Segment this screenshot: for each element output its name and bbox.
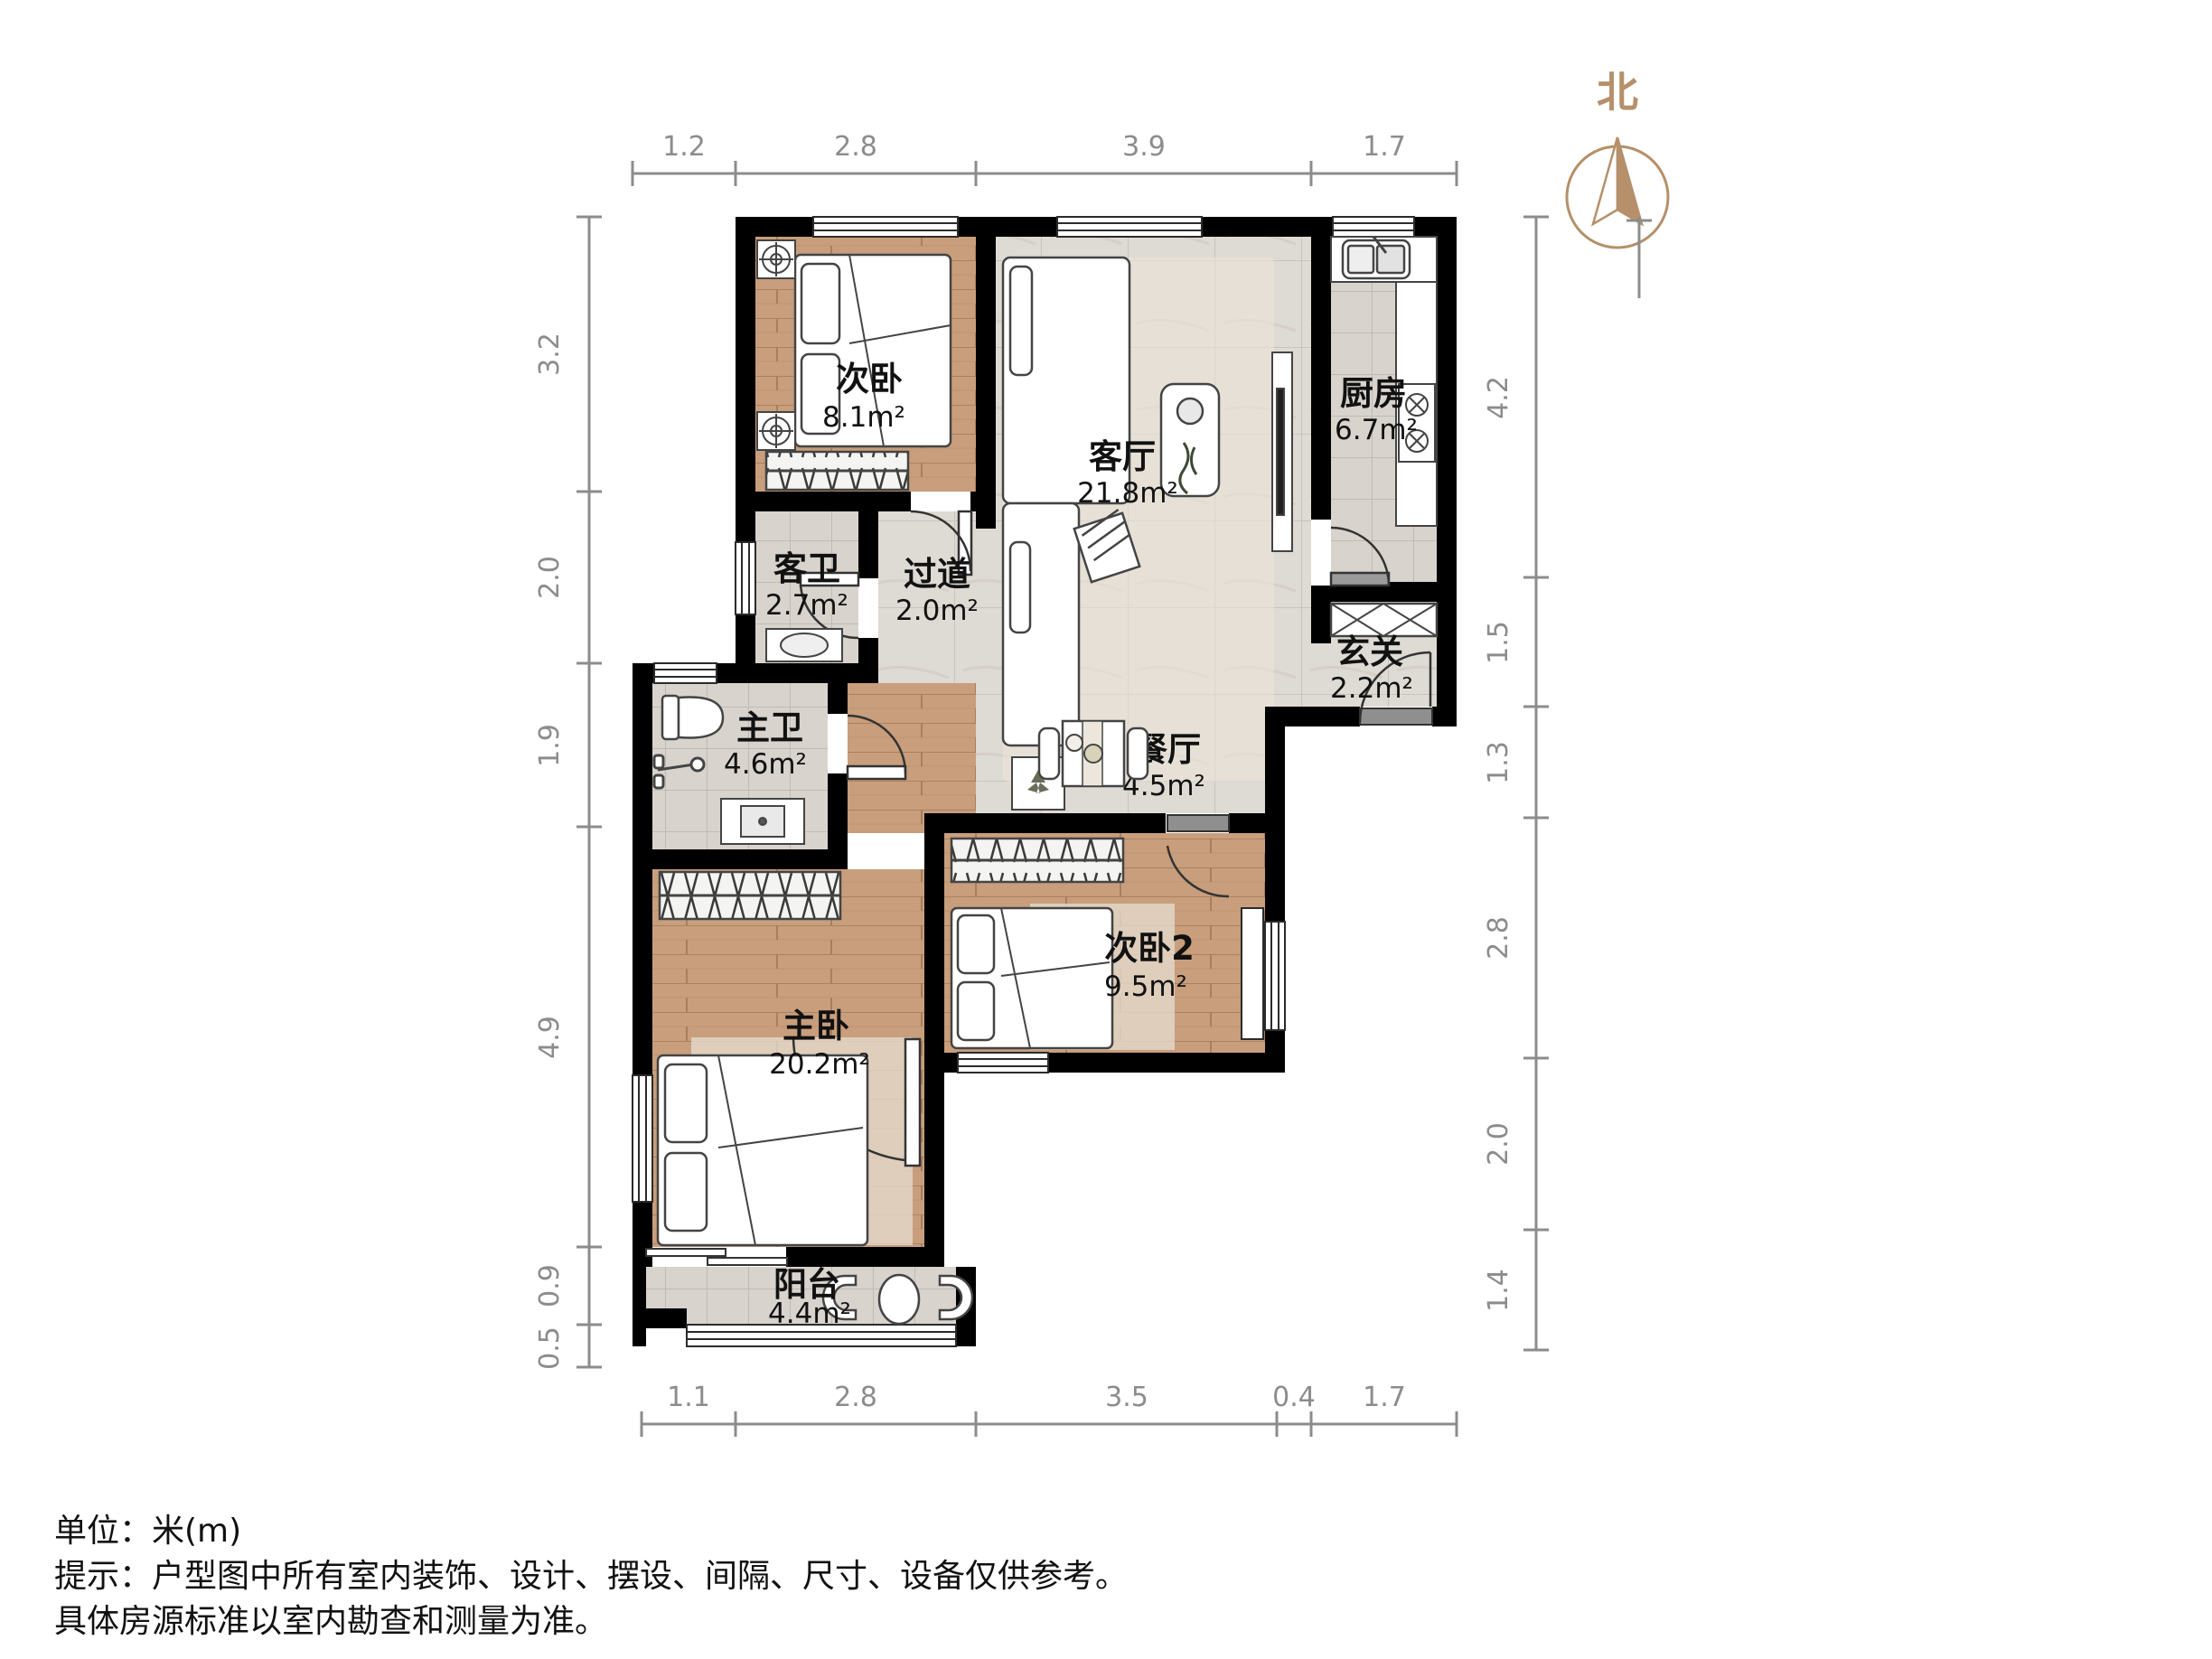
flue-icon	[757, 412, 795, 450]
dim-left	[576, 217, 602, 1367]
dim-left-2: 1.9	[534, 724, 566, 767]
room-area-balcony: 4.4m²	[768, 1298, 851, 1330]
dim-right-5: 1.4	[1483, 1269, 1514, 1312]
sofa-cushion	[1010, 542, 1030, 633]
balcony-table	[879, 1275, 919, 1324]
bedroom3-bed	[951, 908, 1112, 1048]
dim-top-3: 1.7	[1363, 131, 1406, 163]
wall-guestbath-bottom	[755, 663, 878, 683]
wall-masterbath-bottom	[633, 849, 848, 869]
north-arrow-icon: 北	[1567, 68, 1668, 298]
master-wardrobe	[660, 872, 840, 919]
dim-left-5: 0.5	[534, 1326, 566, 1370]
dim-left-1: 2.0	[534, 556, 566, 599]
wall-entry-bottom-a	[1277, 707, 1360, 726]
wall-kitchen-left-a	[1311, 237, 1331, 520]
wall-kitchen-left-b	[1311, 586, 1331, 643]
unit-note: 单位：米(m)	[54, 1513, 241, 1550]
wall-bedroom3-top-a	[924, 813, 1166, 833]
wall-entry-bottom-b	[1432, 707, 1457, 726]
window-master-left	[633, 1075, 652, 1202]
master-bed	[658, 1055, 867, 1245]
footer-notes: 单位：米(m) 提示：户型图中所有室内装饰、设计、摆设、间隔、尺寸、设备仅供参考…	[54, 1513, 1128, 1640]
room-area-entry: 2.2m²	[1330, 672, 1413, 705]
room-area-bedroom3: 9.5m²	[1104, 970, 1187, 1003]
room-area-guestbath: 2.7m²	[765, 589, 848, 622]
bedroom3-wardrobe	[951, 839, 1123, 882]
dim-top-1: 2.8	[834, 131, 877, 163]
dim-top-0: 1.2	[662, 131, 706, 163]
dining-chair	[1128, 728, 1148, 779]
bedroom2-wardrobe	[766, 452, 908, 490]
room-label-entry: 玄关	[1336, 633, 1403, 671]
dim-right	[1523, 217, 1549, 1350]
flue-icon	[757, 240, 795, 278]
dim-right-3: 2.8	[1483, 916, 1514, 960]
room-label-bedroom2: 次卧	[836, 360, 903, 398]
window-bedroom2-top	[813, 217, 958, 237]
dim-right-1: 1.5	[1483, 621, 1514, 664]
guestbath-vanity	[766, 629, 842, 661]
wall-bedroom3-top-b	[1229, 813, 1285, 833]
wall-master-right	[924, 833, 944, 1267]
room-area-master: 20.2m²	[769, 1048, 870, 1081]
door-balcony-slider	[646, 1249, 787, 1265]
wall-balcony-step	[633, 1308, 687, 1328]
room-area-bedroom2: 8.1m²	[822, 401, 905, 434]
wall-bedroom2-right	[976, 237, 996, 529]
pillow	[665, 1064, 707, 1142]
wall-guestbath-right-b	[858, 638, 878, 663]
tv-cabinet	[1272, 352, 1292, 551]
wall-bedroom2-bottom	[736, 492, 911, 511]
dining-chair	[1039, 728, 1059, 779]
dim-right-4: 2.0	[1483, 1122, 1514, 1166]
dim-top	[633, 161, 1457, 186]
room-area-masterbath: 4.6m²	[724, 748, 807, 781]
pillow	[958, 982, 994, 1040]
dim-bottom-2: 3.5	[1105, 1382, 1148, 1413]
masterbath-vanity	[721, 799, 804, 844]
room-label-hallway: 过道	[904, 555, 970, 594]
wall-bedroom2-bottom-2	[970, 492, 996, 511]
wall-master-bottom-b	[786, 1247, 944, 1267]
masterbath-toilet-icon	[662, 696, 723, 739]
wall-masterbath-right-a	[828, 683, 848, 714]
pillow	[665, 1153, 707, 1231]
dim-left-4: 0.9	[534, 1264, 566, 1308]
room-label-living: 客厅	[1089, 437, 1156, 476]
window-bedroom3-right	[1242, 908, 1285, 1039]
dim-right-2: 1.3	[1483, 741, 1514, 784]
window-kitchen-top	[1333, 217, 1414, 237]
pillow	[801, 264, 839, 343]
room-area-kitchen: 6.7m²	[1335, 414, 1418, 446]
entry-shoe-cabinet	[1331, 604, 1437, 636]
dim-top-2: 3.9	[1122, 131, 1166, 163]
wall-balcony-left	[633, 1267, 646, 1346]
room-label-master: 主卧	[783, 1007, 849, 1045]
wall-master-bottom-a	[633, 1247, 646, 1267]
room-area-hallway: 2.0m²	[895, 595, 979, 627]
room-label-masterbath: 主卫	[736, 708, 803, 747]
tip-note-2: 具体房源标准以室内勘查和测量为准。	[54, 1603, 607, 1640]
dim-bottom-4: 1.7	[1363, 1382, 1406, 1413]
kitchen-sink-icon	[1343, 237, 1410, 278]
room-area-living: 21.8m²	[1077, 477, 1178, 510]
floorplan-page: 次卧 8.1m² 客厅 21.8m² 厨房 6.7m² 客卫 2.7m² 过道 …	[0, 0, 2212, 1659]
room-label-kitchen: 厨房	[1340, 374, 1407, 413]
dim-left-0: 3.2	[534, 333, 566, 376]
window-guestbath-left	[736, 542, 755, 614]
floorplan-canvas: 次卧 8.1m² 客厅 21.8m² 厨房 6.7m² 客卫 2.7m² 过道 …	[0, 0, 2212, 1659]
north-label: 北	[1597, 68, 1638, 117]
window-masterbath-top	[654, 663, 717, 683]
wall-guestbath-right-a	[858, 511, 878, 578]
plate-icon	[1084, 745, 1102, 763]
dim-bottom-0: 1.1	[667, 1382, 710, 1413]
dim-right-0: 4.2	[1483, 376, 1514, 419]
dim-bottom-1: 2.8	[834, 1382, 877, 1413]
dim-left-3: 4.9	[534, 1016, 566, 1059]
wall-right-outer-upper	[1437, 217, 1457, 726]
dim-bottom-3: 0.4	[1272, 1382, 1316, 1413]
room-label-guestbath: 客卫	[773, 549, 840, 588]
plate-icon	[1066, 735, 1083, 751]
pillow	[958, 915, 994, 973]
window-bedroom3-bottom	[958, 1053, 1048, 1073]
dim-bottom	[642, 1411, 1457, 1437]
room-label-bedroom3: 次卧2	[1104, 929, 1195, 968]
dining-set	[1039, 721, 1148, 786]
corridor-floor	[848, 683, 976, 833]
tip-note: 提示：户型图中所有室内装饰、设计、摆设、间隔、尺寸、设备仅供参考。	[54, 1558, 1128, 1595]
sofa-cushion	[1010, 267, 1032, 375]
window-living-top	[1057, 217, 1202, 237]
